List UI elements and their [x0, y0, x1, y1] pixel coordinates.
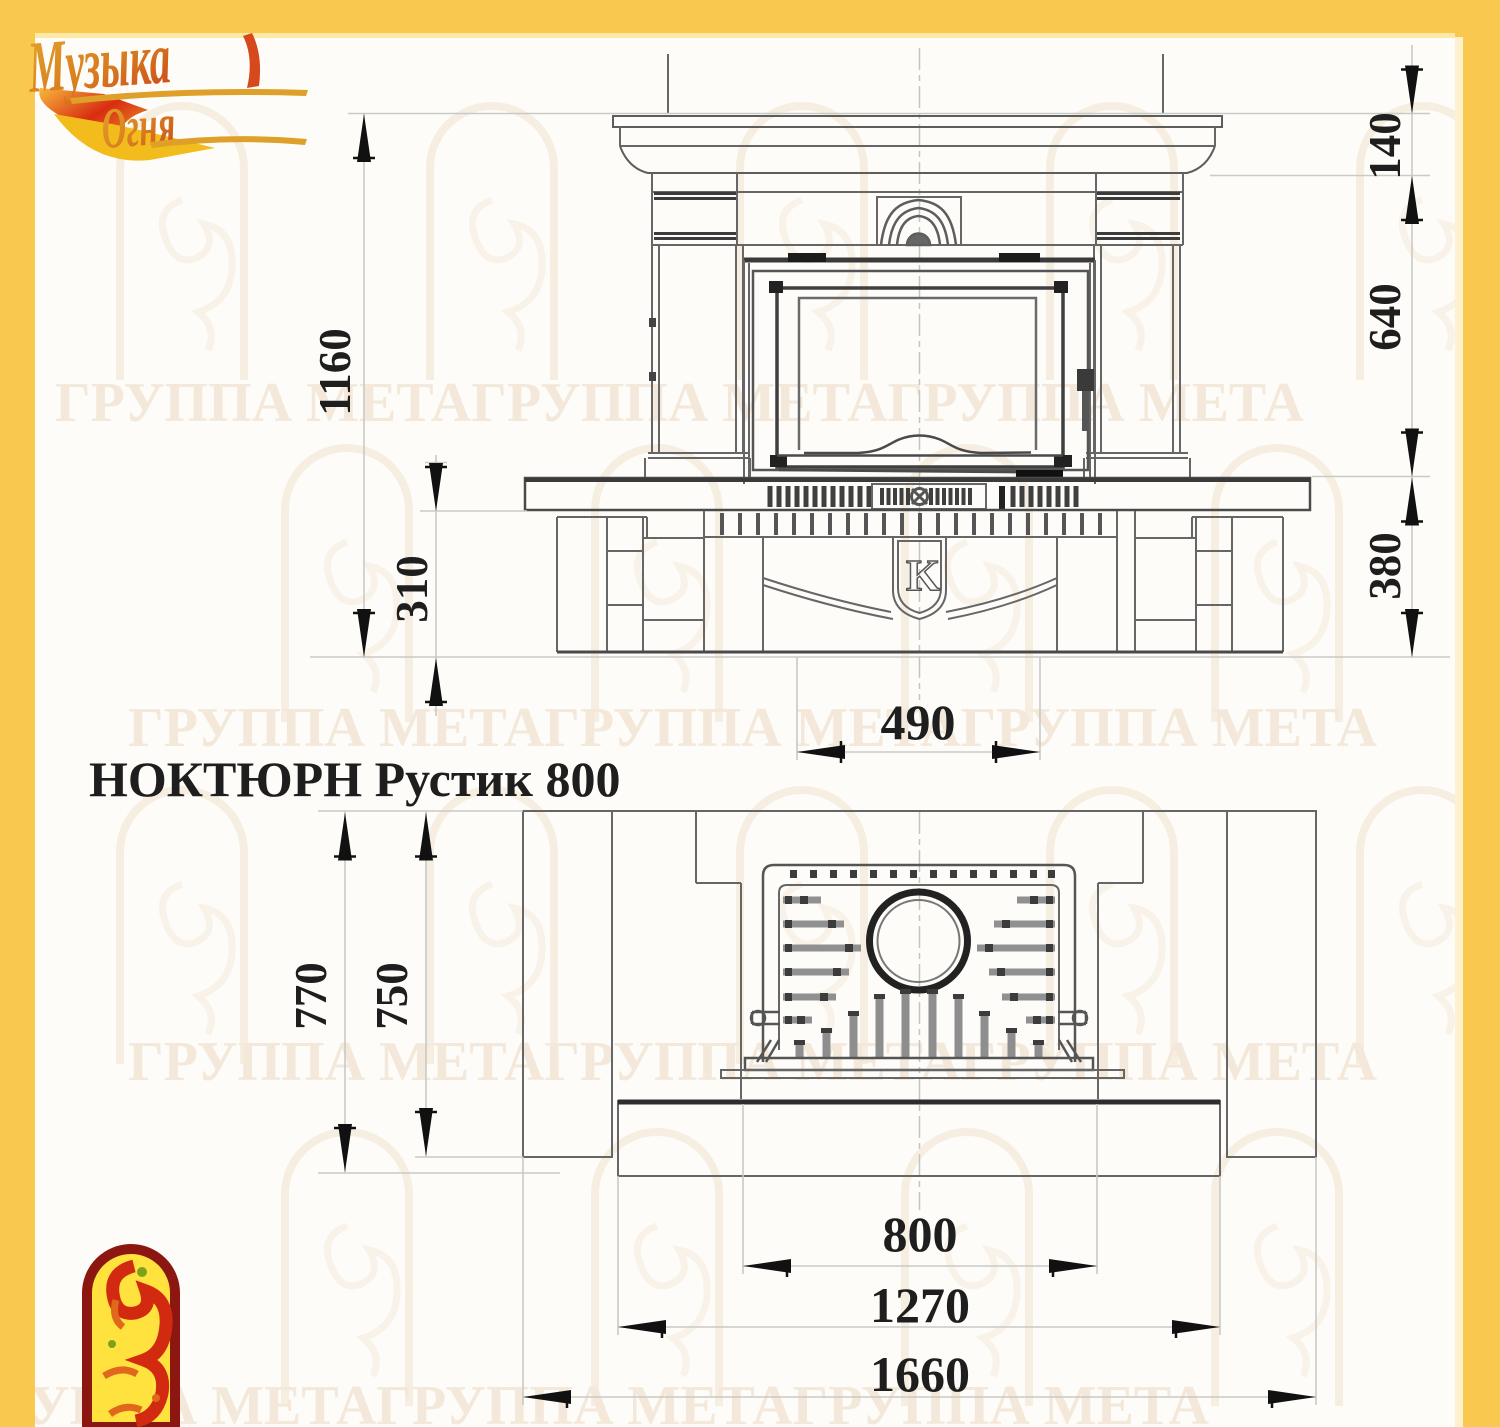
svg-text:380: 380 [1360, 532, 1410, 600]
svg-text:K: K [906, 551, 940, 600]
svg-text:ГРУППА МЕТАГРУППА МЕТАГРУППА М: ГРУППА МЕТАГРУППА МЕТАГРУППА МЕТА [128, 697, 1377, 759]
svg-text:800: 800 [883, 1206, 958, 1262]
svg-text:770: 770 [286, 962, 336, 1030]
svg-text:140: 140 [1360, 112, 1410, 180]
svg-text:1270: 1270 [870, 1277, 970, 1333]
svg-text:1660: 1660 [870, 1346, 970, 1402]
svg-text:310: 310 [387, 555, 437, 623]
svg-text:ГРУППА МЕТАГРУППА МЕТАГРУППА М: ГРУППА МЕТАГРУППА МЕТАГРУППА МЕТА [55, 372, 1304, 434]
svg-text:1160: 1160 [310, 328, 360, 416]
svg-text:ГРУППА МЕТАГРУППА МЕТАГРУППА М: ГРУППА МЕТАГРУППА МЕТАГРУППА МЕТА [128, 1031, 1377, 1093]
svg-text:Огня: Огня [100, 93, 178, 161]
svg-text:750: 750 [367, 962, 417, 1030]
svg-text:НОКТЮРН Рустик 800: НОКТЮРН Рустик 800 [89, 751, 621, 807]
svg-text:490: 490 [881, 694, 956, 750]
svg-text:640: 640 [1360, 283, 1410, 351]
svg-text:ГРУППА МЕТАГРУППА МЕТАГРУППА М: ГРУППА МЕТАГРУППА МЕТАГРУППА МЕТА [0, 1375, 1209, 1427]
